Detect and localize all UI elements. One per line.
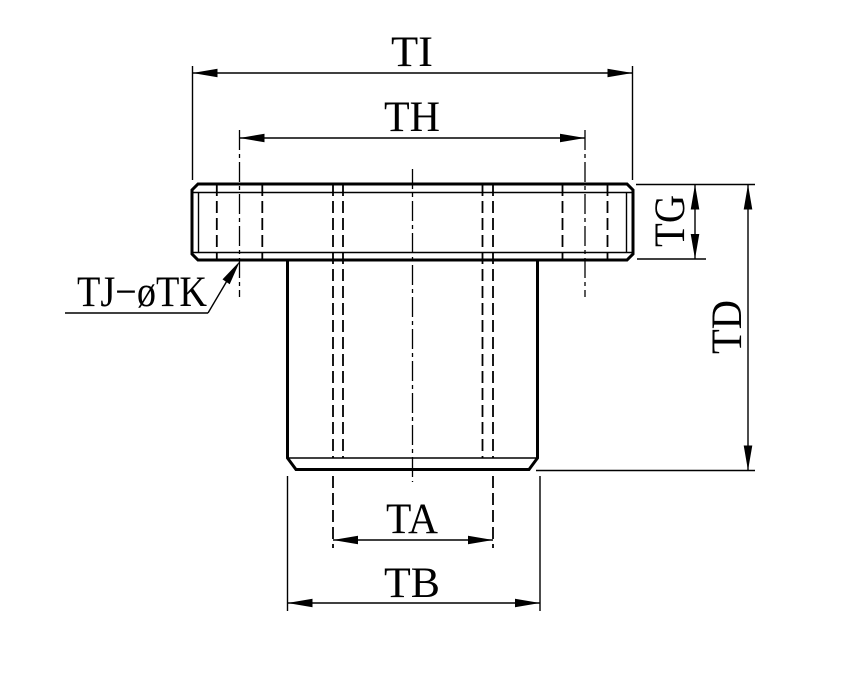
label-ta: TA [386,496,438,543]
technical-drawing-canvas: TI TH TG TD TA TB [0,0,851,683]
label-ti: TI [391,29,433,76]
label-tb: TB [384,560,440,607]
label-tj-otk: TJ−øTK [77,269,207,316]
label-tg: TG [647,195,694,247]
label-th: TH [384,94,440,141]
flanged-bushing-drawing: TI TH TG TD TA TB [0,0,851,683]
label-td: TD [704,300,751,354]
